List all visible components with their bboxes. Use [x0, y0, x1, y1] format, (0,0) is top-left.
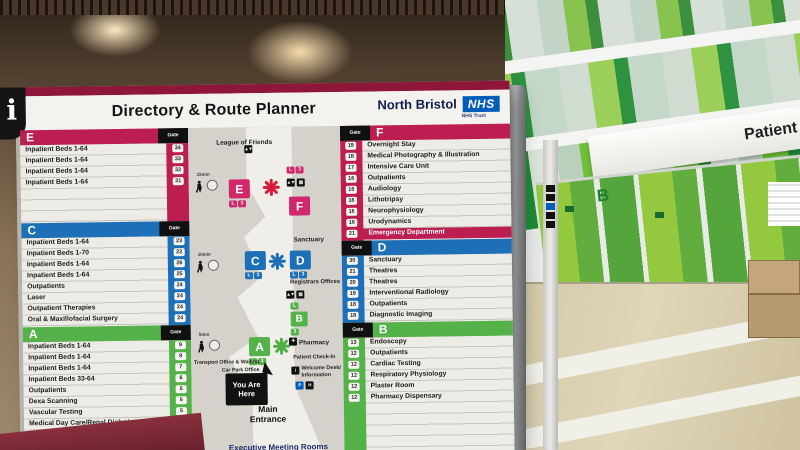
- pharmacy-cross-icon: +: [289, 338, 297, 346]
- walk-time-label: 10min: [198, 252, 211, 257]
- hospital-icon: H: [306, 381, 314, 389]
- gate-chip: 32: [173, 166, 184, 174]
- exit-sign: [655, 212, 664, 218]
- gate-chip: 19: [345, 142, 356, 150]
- gate-header: Gate: [161, 325, 191, 340]
- gate-chip: 12: [348, 372, 359, 380]
- block-e: E: [229, 179, 250, 198]
- gate-chip: 18: [348, 312, 359, 320]
- gate-chip: 16: [346, 219, 357, 227]
- parking-icon: P: [296, 381, 304, 389]
- star-burst-icon: [273, 338, 290, 355]
- gate-chip: 19: [347, 290, 358, 298]
- gate-header: Gate: [159, 221, 189, 236]
- gate-chip: 24: [174, 281, 185, 289]
- bright-glazing: [768, 182, 800, 226]
- route-map: League of Friends ▲▼ 15min E L 3 L 3 ▲▼: [188, 126, 345, 450]
- stairs-icon: ▤: [296, 290, 304, 298]
- gate-chip: 16: [346, 175, 357, 183]
- map-label: Welcome Desk/: [301, 365, 341, 372]
- gate-chip: 25: [174, 270, 185, 278]
- gate-chip: 23: [174, 237, 185, 245]
- wayfinding-totem: [543, 140, 558, 450]
- page-title: Directory & Route Planner: [112, 100, 316, 121]
- gate-chip: 6: [175, 374, 186, 382]
- gate-header: Gate: [343, 323, 373, 338]
- destination-label: Emergency Department: [368, 227, 511, 239]
- gate-chip: 5: [176, 385, 187, 393]
- directory-row: Inpatient Beds 1-64 31: [21, 176, 189, 189]
- walk-time-label: 15min: [197, 172, 210, 177]
- gate-chip: 21: [347, 268, 358, 276]
- block-d: D: [290, 250, 311, 269]
- gate-chip: 30: [347, 257, 358, 265]
- walk-time-icon: 5min: [197, 336, 225, 353]
- level-chip: L: [290, 303, 298, 310]
- destination-label: Pharmacy Dispensary: [371, 391, 514, 403]
- level-chip: L 3: [287, 166, 304, 173]
- block-f: F: [289, 196, 310, 215]
- walking-person-icon: [195, 181, 203, 193]
- section-b: Gate B Endoscopy 13 Outpatients 12: [343, 321, 515, 450]
- gate-chip: 16: [346, 208, 357, 216]
- lift-icon: ▲▼: [287, 179, 295, 187]
- gate-chip: 33: [172, 155, 183, 163]
- stairs-icon: ▤: [297, 178, 305, 186]
- hospital-atrium-photo: Patient Check In B i Directory & Route P…: [0, 0, 800, 450]
- directory-sign: i Directory & Route Planner North Bristo…: [15, 81, 514, 450]
- map-label: Information: [301, 372, 331, 378]
- lift-icon: ▲▼: [244, 145, 252, 153]
- exit-sign: [565, 206, 574, 212]
- walk-time-icon: 10min: [196, 256, 224, 273]
- gate-chip: 18: [347, 301, 358, 309]
- gate-chip: 24: [175, 314, 186, 322]
- gate-chip: 5: [176, 396, 187, 404]
- box: [748, 294, 800, 338]
- gate-chip: 17: [345, 164, 356, 172]
- box: [748, 260, 800, 294]
- walk-time-label: 5min: [199, 332, 210, 337]
- section-f: Gate F Overnight Stay 19 Medical Photogr…: [340, 124, 512, 241]
- gate-chip: 21: [346, 230, 357, 238]
- block-c: C: [245, 251, 266, 270]
- gate-header: Gate: [342, 241, 372, 256]
- gate-chip: 12: [349, 394, 360, 402]
- ceiling-slats: [0, 0, 512, 15]
- gate-chip: 20: [347, 279, 358, 287]
- gate-chip: 13: [348, 339, 359, 347]
- gate-chip: 12: [348, 361, 359, 369]
- level-chip: L 3: [245, 272, 262, 279]
- main-entrance-label: Main Entrance: [220, 404, 316, 425]
- nhs-trust-label: NHS Trust: [378, 112, 486, 120]
- map-label: Transport Office & Waiting: [191, 360, 259, 367]
- gate-header: Gate: [340, 126, 370, 141]
- left-directory-column: E Gate Inpatient Beds 1-64 34 Inpatient …: [20, 128, 193, 450]
- directory-row: Oral & Maxillofacial Surgery 24: [23, 313, 191, 326]
- section-e: E Gate Inpatient Beds 1-64 34 Inpatient …: [20, 128, 189, 223]
- section-c: C Gate Inpatient Beds 1-64 23 Inpatient …: [21, 221, 190, 327]
- you-are-here-marker: You Are Here: [225, 373, 267, 406]
- gate-chip: 12: [349, 383, 360, 391]
- walking-person-icon: [196, 261, 204, 273]
- gate-chip: 24: [174, 292, 185, 300]
- patient-check-in-label: Patient Check In: [743, 109, 800, 144]
- block-b: B: [291, 311, 308, 326]
- clock-icon: [209, 340, 220, 351]
- cardboard-boxes: [748, 260, 800, 338]
- level-chip: L 3: [290, 271, 307, 278]
- nhs-logo: NHS: [463, 95, 500, 112]
- walking-person-icon: [197, 341, 205, 353]
- info-chip-icon: i: [291, 367, 299, 375]
- nhs-brand: North Bristol NHS NHS Trust: [377, 95, 500, 120]
- gate-chip: 12: [348, 350, 359, 358]
- gate-chip: 24: [174, 303, 185, 311]
- gate-chip: 34: [172, 144, 183, 152]
- atrium-interior: Patient Check In B: [505, 0, 800, 450]
- gate-chip: 9: [175, 341, 186, 349]
- destination-label: Oral & Maxillofacial Surgery: [23, 313, 167, 326]
- map-label: Registrars Offices: [290, 279, 340, 286]
- level-chip: L 3: [229, 200, 246, 207]
- totem-icons: [546, 185, 555, 228]
- gate-chip: 8: [175, 352, 186, 360]
- map-label: Sanctuary: [294, 236, 325, 243]
- section-d: Gate D Sanctuary 30 Theatres 21: [342, 239, 513, 323]
- walk-time-icon: 15min: [195, 176, 223, 193]
- destination-label: Inpatient Beds 1-64: [21, 176, 165, 189]
- org-name: North Bristol: [377, 96, 457, 112]
- gate-chip: 18: [345, 153, 356, 161]
- block-a: A: [249, 337, 270, 356]
- star-burst-icon: [263, 179, 280, 196]
- destination-label: Diagnostic Imaging: [370, 309, 513, 321]
- lift-icon: ▲▼: [286, 291, 294, 299]
- gate-header: Gate: [158, 128, 188, 143]
- gate-chip: 26: [174, 259, 185, 267]
- directory-row: Pharmacy Dispensary 12: [344, 391, 514, 404]
- gate-chip: 16: [346, 186, 357, 194]
- map-label: Patient Check-In: [293, 354, 335, 361]
- gate-chip: 22: [174, 248, 185, 256]
- clock-icon: [208, 260, 219, 271]
- star-burst-icon: [269, 253, 286, 270]
- gate-chip: 7: [175, 363, 186, 371]
- clock-icon: [207, 180, 218, 191]
- map-label-partial: Executive Meeting Rooms: [214, 442, 342, 450]
- right-directory-column: Gate F Overnight Stay 19 Medical Photogr…: [340, 124, 515, 450]
- gate-chip: 16: [346, 197, 357, 205]
- zone-b-wall-letter: B: [596, 185, 610, 206]
- map-label: Pharmacy: [299, 339, 329, 346]
- level-chip: 3: [291, 329, 299, 336]
- gate-chip: 31: [173, 177, 184, 185]
